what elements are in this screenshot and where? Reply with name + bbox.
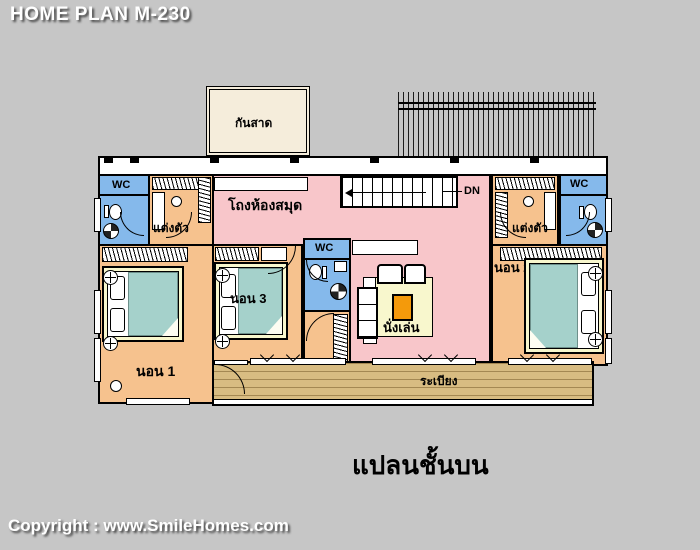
blanket-fold [530,330,546,348]
bedroom-3-label: นอน 3 [230,292,266,305]
wardrobe-hatch [495,177,555,190]
canopy-label: กันสาด [235,117,272,129]
armchair [377,264,403,284]
shelf-hatch [333,314,348,362]
stool-icon [523,196,534,207]
blanket-fold [162,318,178,336]
roof-ridge-lines [398,102,596,110]
copyright-text: Copyright : www.SmileHomes.com [8,516,289,536]
window [126,398,190,405]
ceiling-fan-icon [588,266,603,281]
stairs-dn-label: DN [464,186,480,197]
stool-icon [171,196,182,207]
sink-icon [334,261,347,272]
window [605,338,612,364]
roof-hatch [398,92,596,156]
library-hall-label: โถงห้องสมุด [228,198,302,212]
room-balcony [212,361,594,406]
balcony-rail [214,399,592,404]
exhaust-fan-icon [103,223,119,239]
ceiling-fan-icon [103,336,118,351]
stair-rail-line [350,192,426,193]
floor-plan-page: HOME PLAN M-230 Copyright : www.SmileHom… [0,0,700,550]
stair-arrow [345,189,352,197]
door-glyph [110,380,122,392]
exhaust-fan-icon [330,283,347,300]
living-label: นั่งเล่น [383,321,420,334]
bookshelf [214,177,308,191]
wc-left-divider-wall [100,194,148,196]
wc-center-label: WC [315,243,333,254]
canopy-room: กันสาด [206,86,310,156]
bedroom-1-label: นอน 1 [136,364,175,378]
blanket-fold [266,316,282,334]
pillow [581,310,596,334]
armchair [404,264,426,284]
sofa [357,287,378,339]
wc-right-label: WC [570,179,588,190]
floor-caption: แปลนชั้นบน [352,452,489,478]
page-title: HOME PLAN M-230 [10,4,191,26]
top-wall-band [98,156,608,176]
pillow [221,306,236,330]
coffee-table [392,294,413,321]
wc-left-label: WC [112,180,130,191]
ceiling-fan-icon [215,268,230,283]
balcony-label: ระเบียง [420,375,458,387]
wc-right-divider-wall [561,194,606,196]
window [94,290,101,334]
window [605,290,612,334]
wardrobe-hatch [102,247,188,262]
stairs [340,176,458,208]
pillow [110,308,125,332]
counter-shelf [352,240,418,255]
ceiling-fan-icon [215,334,230,349]
blanket [530,264,578,348]
blanket [128,272,178,336]
exhaust-fan-icon [587,222,603,238]
ceiling-fan-icon [588,332,603,347]
shelf-hatch [198,177,211,223]
dn-leader-line [442,191,462,192]
window [605,198,612,232]
ceiling-fan-icon [103,270,118,285]
wardrobe-hatch [215,247,259,261]
window [94,338,101,382]
window [94,198,101,232]
wall-posts [100,157,606,163]
